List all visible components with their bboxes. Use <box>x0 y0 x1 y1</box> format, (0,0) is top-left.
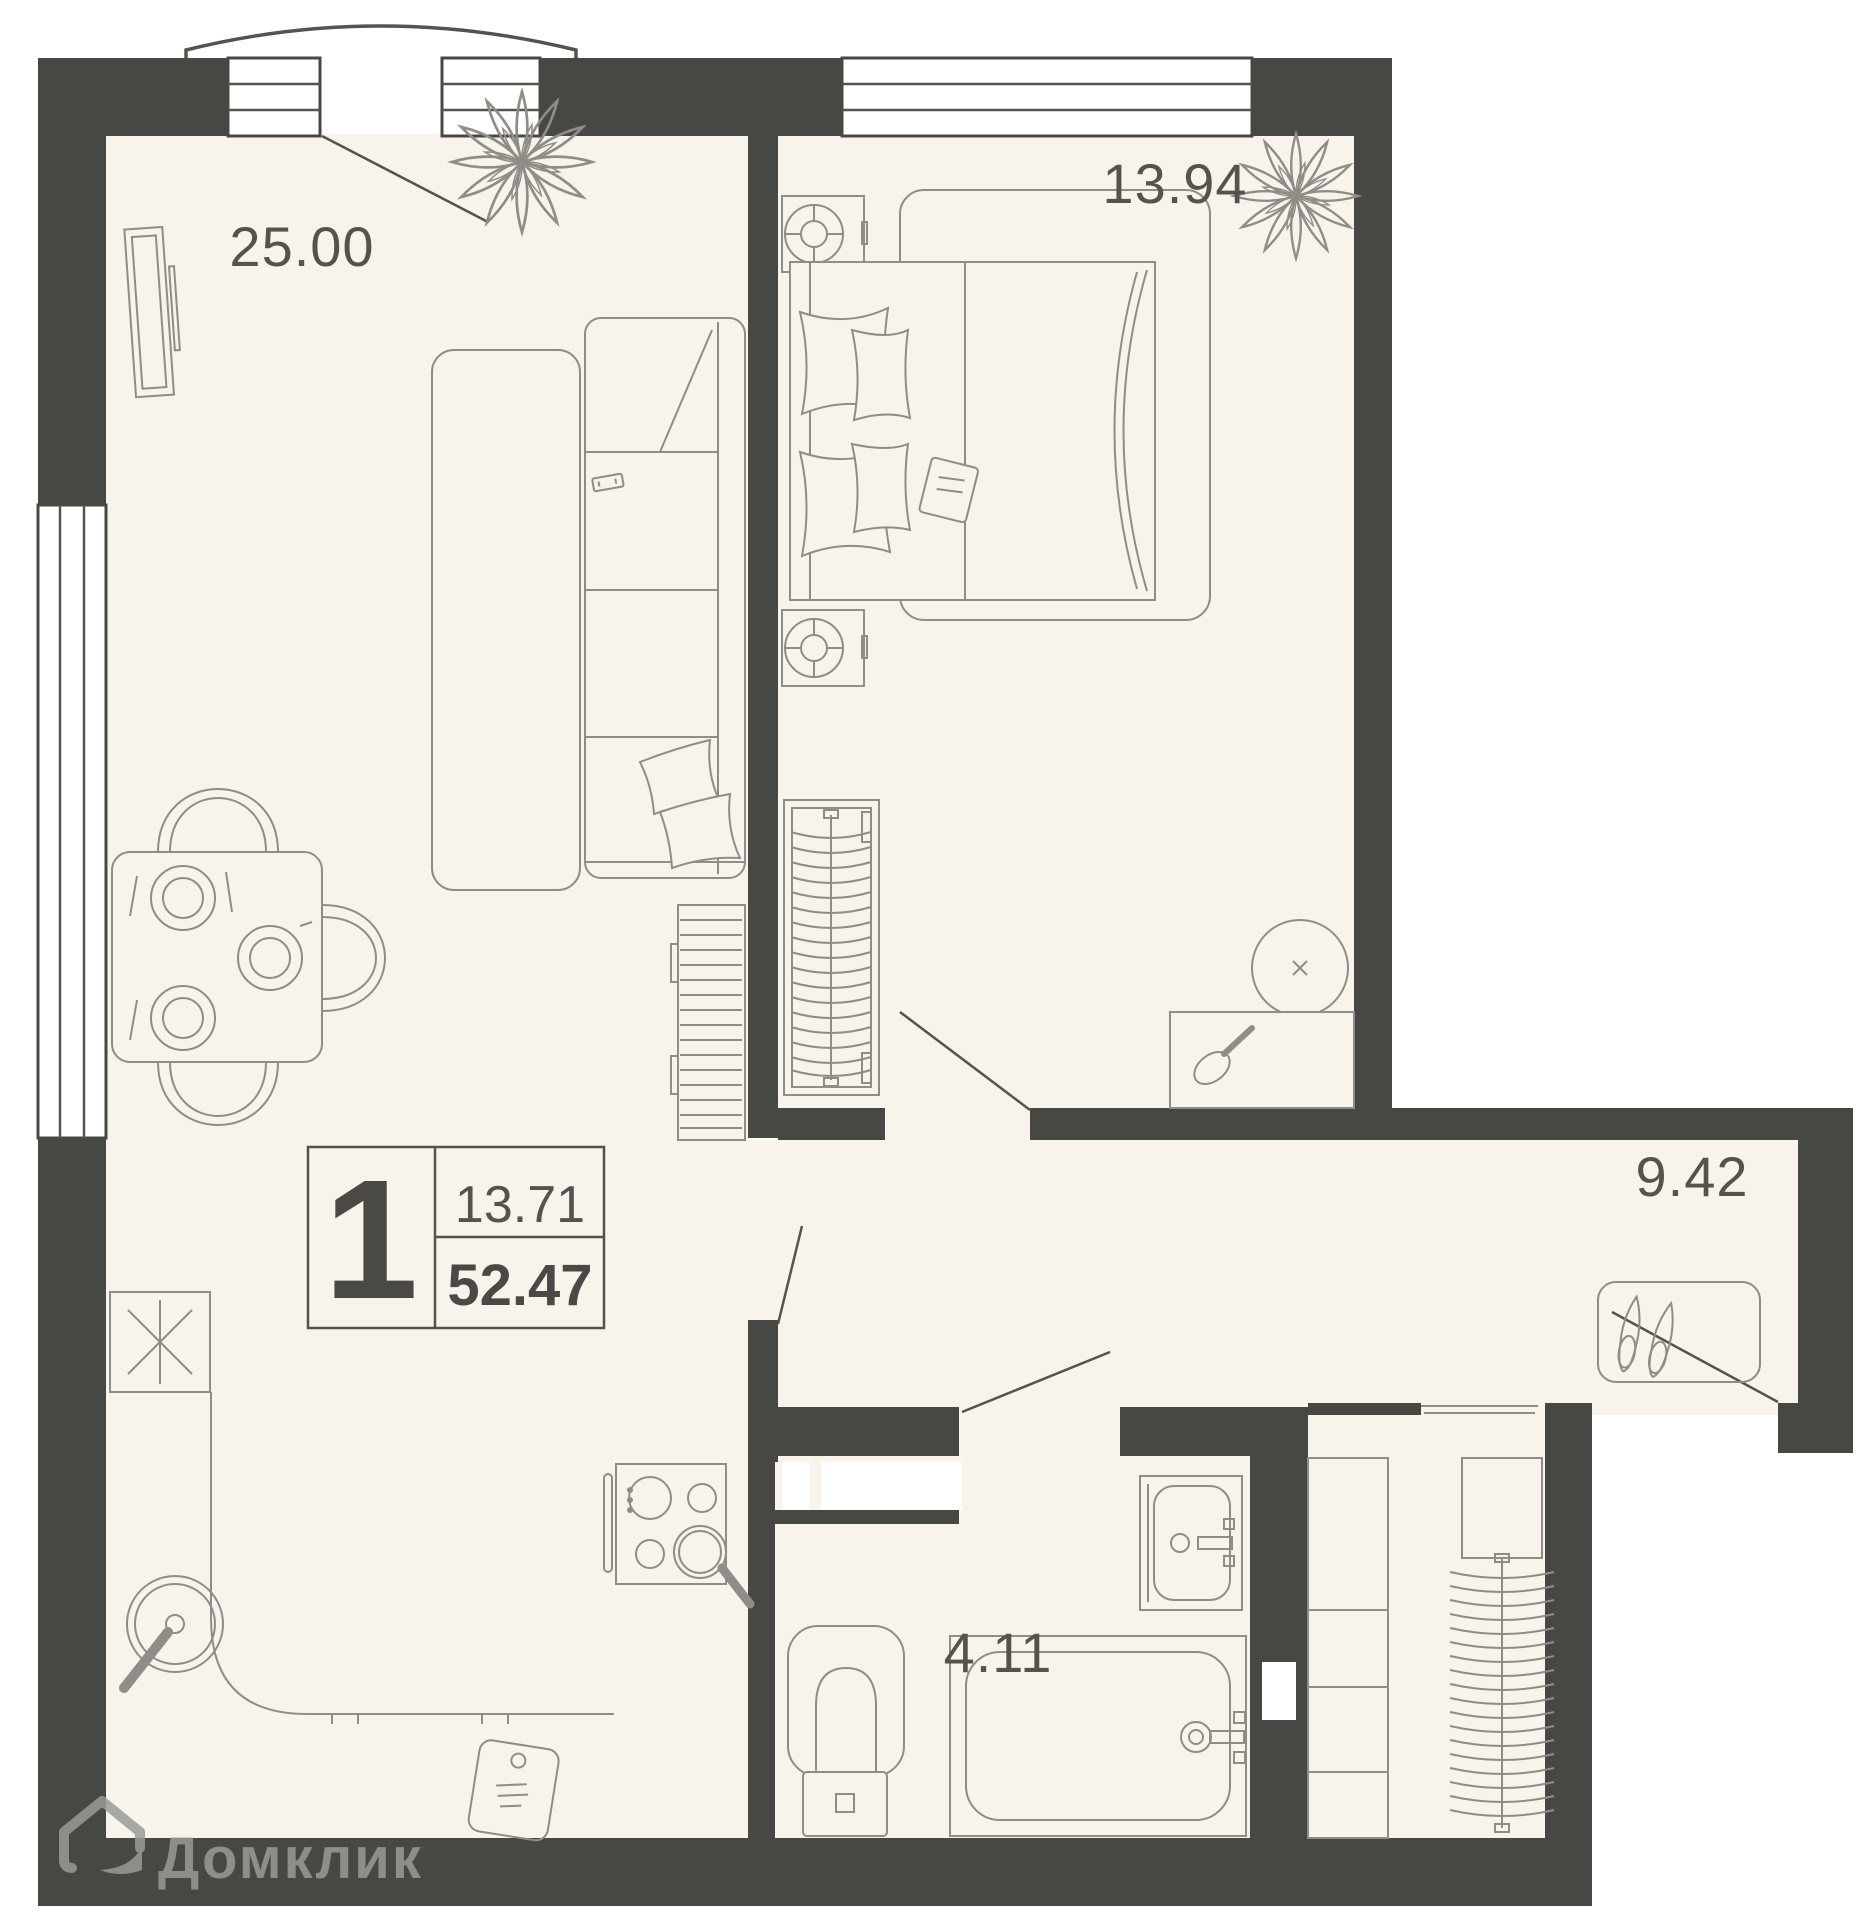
window-icon-left <box>38 505 106 1138</box>
badge-total-area: 52.47 <box>447 1253 592 1318</box>
floor-bedroom-doorway <box>885 1108 1030 1144</box>
wall-hallway-top <box>1030 1108 1853 1140</box>
wall-bath-left <box>748 1456 775 1838</box>
bath-sink-icon <box>1140 1476 1242 1610</box>
nightstand-icon <box>782 196 867 272</box>
wall-closet-top <box>1308 1403 1421 1415</box>
wall-bath-right <box>1250 1407 1308 1838</box>
watermark-brand: Домклик <box>158 1826 423 1891</box>
label-hallway-area: 9.42 <box>1636 1145 1749 1208</box>
wall-bath-strip <box>771 1510 959 1524</box>
wall-entry-block <box>1778 1403 1853 1453</box>
window-icon-living-2 <box>442 58 540 136</box>
badge-room-area: 13.71 <box>455 1176 585 1234</box>
balcony-arc <box>186 26 576 58</box>
wall-top-mid <box>540 58 842 136</box>
label-living-area: 25.00 <box>229 215 374 278</box>
wall-bath-top-right <box>1120 1407 1250 1456</box>
bath-door-panel <box>821 1462 962 1510</box>
toilet-icon <box>788 1626 904 1836</box>
pillow-icon <box>852 444 910 532</box>
wall-hallway-right <box>1798 1108 1853 1403</box>
badge-rooms-count: 1 <box>324 1145 419 1335</box>
floor-plan-screenshot: 25.00 13.94 9.42 4.11 1 13.71 52.47 Домк… <box>0 0 1870 1920</box>
wall-bedroom-right <box>1354 58 1392 1108</box>
floor-plan-svg: 25.00 13.94 9.42 4.11 1 13.71 52.47 Домк… <box>0 0 1870 1920</box>
wall-closet-right <box>1545 1403 1592 1906</box>
bed-icon <box>790 262 1155 600</box>
wall-living-bedroom-divider <box>748 134 778 1138</box>
label-bathroom-area: 4.11 <box>944 1621 1053 1684</box>
wall-bath-top-left <box>748 1407 959 1456</box>
wall-left-lower <box>38 1138 106 1906</box>
pillow-icon <box>852 330 910 420</box>
window-icon-living-1 <box>228 58 320 136</box>
label-bedroom-area: 13.94 <box>1102 152 1247 215</box>
sofa-icon <box>585 318 745 878</box>
wall-niche <box>1262 1662 1296 1720</box>
bath-door-panel-small <box>782 1462 810 1510</box>
wall-bedroom-bottom-left <box>778 1108 885 1140</box>
wall-left-upper <box>38 58 106 505</box>
window-icon-bedroom <box>842 58 1252 136</box>
nightstand-icon <box>782 610 867 686</box>
